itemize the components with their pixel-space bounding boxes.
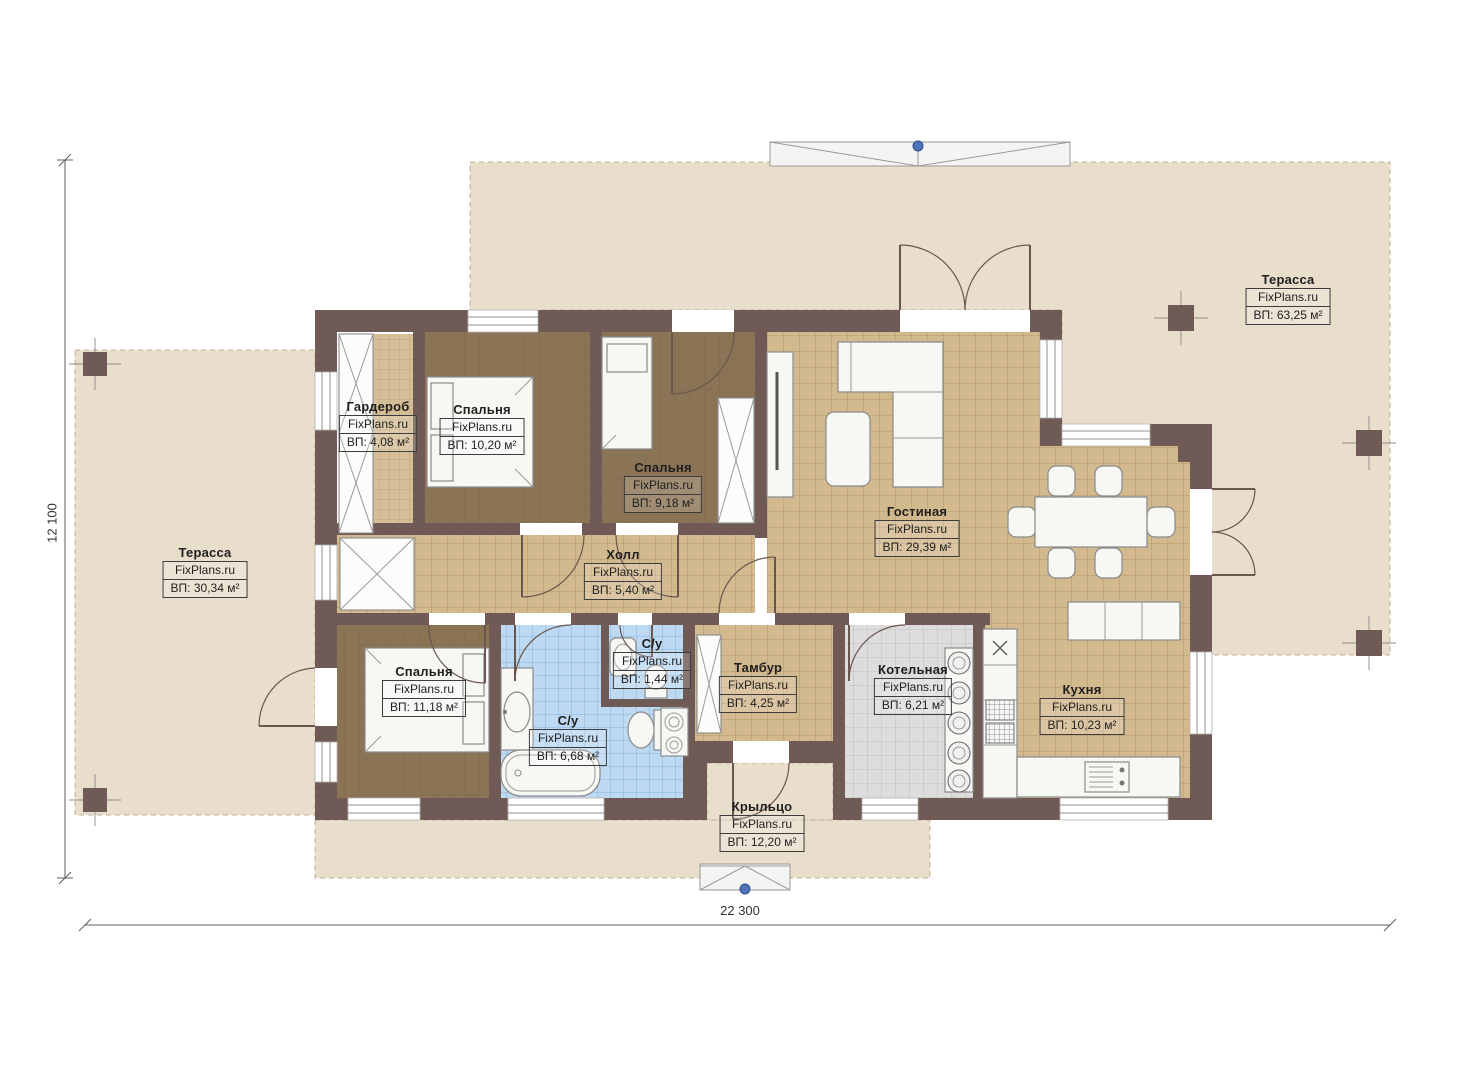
coffee-table (826, 412, 870, 486)
room-name: С/у (613, 636, 691, 651)
room-name: Терасса (1246, 272, 1331, 287)
dimension-height-label: 12 100 (45, 503, 60, 543)
kitchen-counter-top (1068, 602, 1180, 640)
room-name: Спальня (440, 402, 525, 417)
room-label-wc-small: С/у FixPlans.ru ВП: 1,44 м² (613, 636, 691, 689)
room-info-box: FixPlans.ru ВП: 29,39 м² (875, 520, 960, 557)
room-info-box: FixPlans.ru ВП: 1,44 м² (613, 652, 691, 689)
washer-dryer (661, 708, 688, 756)
kitchen-counter-left (983, 629, 1017, 798)
watermark: FixPlans.ru (383, 681, 465, 699)
room-label-terrace-left: Терасса FixPlans.ru ВП: 30,34 м² (163, 545, 248, 598)
room-label-boiler-room: Котельная FixPlans.ru ВП: 6,21 м² (874, 662, 952, 715)
room-info-box: FixPlans.ru ВП: 5,40 м² (584, 563, 662, 600)
toilet (628, 710, 666, 750)
room-name: Терасса (163, 545, 248, 560)
room-label-bedroom-3: Спальня FixPlans.ru ВП: 11,18 м² (382, 664, 466, 717)
canopy-marker-top (770, 141, 1070, 166)
room-name: С/у (529, 713, 607, 728)
watermark: FixPlans.ru (340, 416, 416, 434)
room-area: ВП: 1,44 м² (614, 671, 690, 688)
watermark: FixPlans.ru (721, 816, 804, 834)
room-info-box: FixPlans.ru ВП: 4,08 м² (339, 415, 417, 452)
room-area: ВП: 11,18 м² (383, 699, 465, 716)
room-info-box: FixPlans.ru ВП: 30,34 м² (163, 561, 248, 598)
stove-burners (986, 700, 1014, 720)
room-label-porch: Крыльцо FixPlans.ru ВП: 12,20 м² (720, 799, 805, 852)
watermark: FixPlans.ru (876, 521, 959, 539)
room-name: Спальня (624, 460, 702, 475)
hall-closet (340, 538, 414, 610)
room-area: ВП: 6,68 м² (530, 748, 606, 765)
room-info-box: FixPlans.ru ВП: 6,68 м² (529, 729, 607, 766)
room-name: Котельная (874, 662, 952, 677)
watermark: FixPlans.ru (441, 419, 524, 437)
map-pin-icon (913, 141, 923, 151)
watermark: FixPlans.ru (585, 564, 661, 582)
room-info-box: FixPlans.ru ВП: 10,20 м² (440, 418, 525, 455)
vestibule-closet (697, 635, 721, 733)
bedroom-2-wardrobe (718, 398, 754, 523)
room-area: ВП: 10,23 м² (1041, 717, 1124, 734)
watermark: FixPlans.ru (1041, 699, 1124, 717)
room-label-vestibule: Тамбур FixPlans.ru ВП: 4,25 м² (719, 660, 797, 713)
room-label-bedroom-2: Спальня FixPlans.ru ВП: 9,18 м² (624, 460, 702, 513)
watermark: FixPlans.ru (720, 677, 796, 695)
room-label-kitchen: Кухня FixPlans.ru ВП: 10,23 м² (1040, 682, 1125, 735)
watermark: FixPlans.ru (530, 730, 606, 748)
room-info-box: FixPlans.ru ВП: 4,25 м² (719, 676, 797, 713)
watermark: FixPlans.ru (1247, 289, 1330, 307)
room-info-box: FixPlans.ru ВП: 6,21 м² (874, 678, 952, 715)
room-area: ВП: 4,25 м² (720, 695, 796, 712)
room-area: ВП: 6,21 м² (875, 697, 951, 714)
room-label-bathroom: С/у FixPlans.ru ВП: 6,68 м² (529, 713, 607, 766)
room-name: Спальня (382, 664, 466, 679)
bedroom-2-bed (602, 337, 652, 449)
room-name: Гардероб (339, 399, 417, 414)
dimension-width-label: 22 300 (720, 903, 760, 918)
room-area: ВП: 9,18 м² (625, 495, 701, 512)
room-label-terrace-top: Терасса FixPlans.ru ВП: 63,25 м² (1246, 272, 1331, 325)
room-name: Холл (584, 547, 662, 562)
room-name: Гостиная (875, 504, 960, 519)
canopy-marker-bottom (700, 864, 790, 894)
room-area: ВП: 5,40 м² (585, 582, 661, 599)
room-info-box: FixPlans.ru ВП: 9,18 м² (624, 476, 702, 513)
watermark: FixPlans.ru (625, 477, 701, 495)
watermark: FixPlans.ru (164, 562, 247, 580)
floor-plan-canvas: Терасса FixPlans.ru ВП: 63,25 м² Терасса… (0, 0, 1474, 1080)
room-info-box: FixPlans.ru ВП: 10,23 м² (1040, 698, 1125, 735)
room-info-box: FixPlans.ru ВП: 11,18 м² (382, 680, 466, 717)
room-area: ВП: 30,34 м² (164, 580, 247, 597)
room-label-living-room: Гостиная FixPlans.ru ВП: 29,39 м² (875, 504, 960, 557)
room-area: ВП: 12,20 м² (721, 834, 804, 851)
room-info-box: FixPlans.ru ВП: 63,25 м² (1246, 288, 1331, 325)
watermark: FixPlans.ru (614, 653, 690, 671)
room-label-hall: Холл FixPlans.ru ВП: 5,40 м² (584, 547, 662, 600)
room-name: Тамбур (719, 660, 797, 675)
room-label-bedroom-1: Спальня FixPlans.ru ВП: 10,20 м² (440, 402, 525, 455)
stove-burners (986, 723, 1014, 743)
room-area: ВП: 63,25 м² (1247, 307, 1330, 324)
room-name: Крыльцо (720, 799, 805, 814)
room-area: ВП: 29,39 м² (876, 539, 959, 556)
room-name: Кухня (1040, 682, 1125, 697)
floor-plan-drawing (0, 0, 1474, 1080)
kitchen-counter-bottom (1017, 757, 1180, 797)
room-area: ВП: 10,20 м² (441, 437, 524, 454)
map-pin-icon (740, 884, 750, 894)
watermark: FixPlans.ru (875, 679, 951, 697)
tv-cabinet (767, 352, 793, 497)
room-info-box: FixPlans.ru ВП: 12,20 м² (720, 815, 805, 852)
room-label-wardrobe: Гардероб FixPlans.ru ВП: 4,08 м² (339, 399, 417, 452)
room-area: ВП: 4,08 м² (340, 434, 416, 451)
